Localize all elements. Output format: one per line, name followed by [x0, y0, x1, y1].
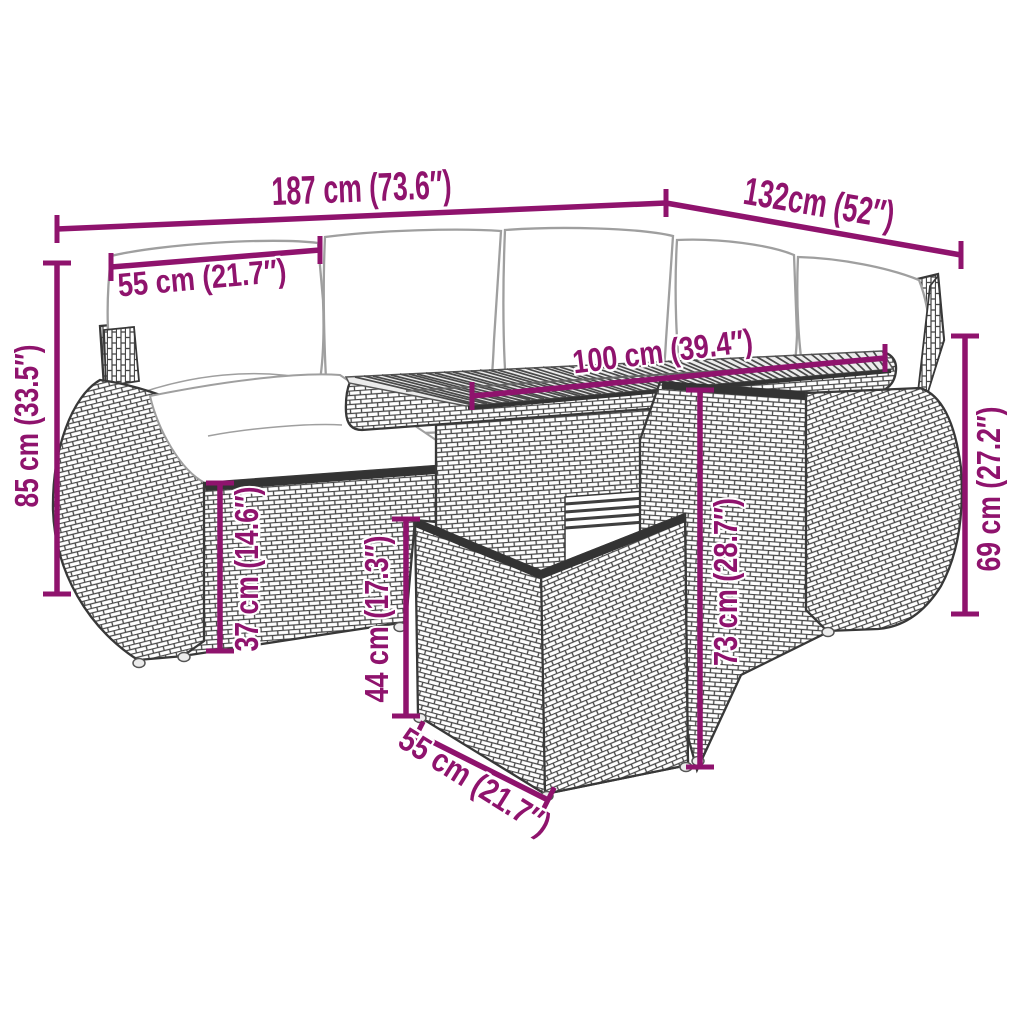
svg-text:44 cm (17.3″): 44 cm (17.3″): [358, 536, 395, 703]
svg-text:73 cm (28.7″): 73 cm (28.7″): [707, 498, 744, 666]
svg-text:37 cm (14.6″): 37 cm (14.6″): [228, 487, 265, 652]
svg-text:85 cm (33.5″): 85 cm (33.5″): [8, 345, 45, 508]
svg-text:187 cm (73.6″): 187 cm (73.6″): [271, 163, 453, 214]
svg-text:69 cm (27.2″): 69 cm (27.2″): [970, 407, 1007, 572]
